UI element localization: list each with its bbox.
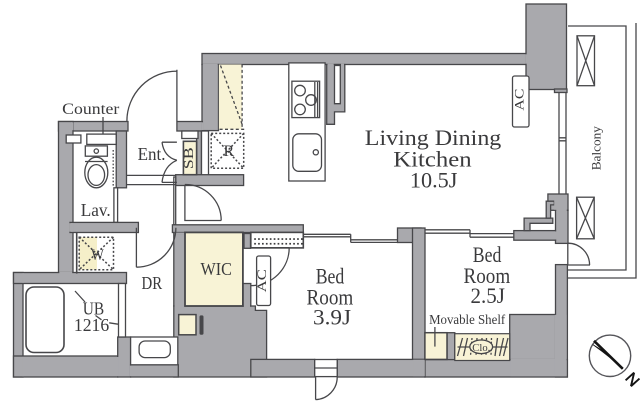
svg-text:R: R — [223, 143, 234, 160]
svg-text:Lav.: Lav. — [81, 200, 111, 220]
svg-text:AC: AC — [254, 269, 269, 292]
svg-text:2.5J: 2.5J — [471, 283, 506, 308]
svg-text:AC: AC — [511, 89, 526, 111]
svg-text:Counter: Counter — [62, 101, 120, 118]
svg-text:Clo.: Clo. — [472, 343, 490, 354]
svg-text:1216: 1216 — [74, 315, 109, 335]
svg-text:WIC: WIC — [201, 259, 232, 279]
svg-text:3.9J: 3.9J — [313, 305, 351, 330]
svg-text:Balcony: Balcony — [589, 126, 604, 171]
svg-text:DR: DR — [142, 273, 163, 293]
svg-text:W: W — [91, 247, 104, 264]
svg-text:SB: SB — [181, 147, 196, 169]
svg-text:Ent.: Ent. — [138, 144, 166, 164]
svg-text:Movable Shelf: Movable Shelf — [429, 312, 506, 327]
svg-text:10.5J: 10.5J — [410, 168, 458, 193]
